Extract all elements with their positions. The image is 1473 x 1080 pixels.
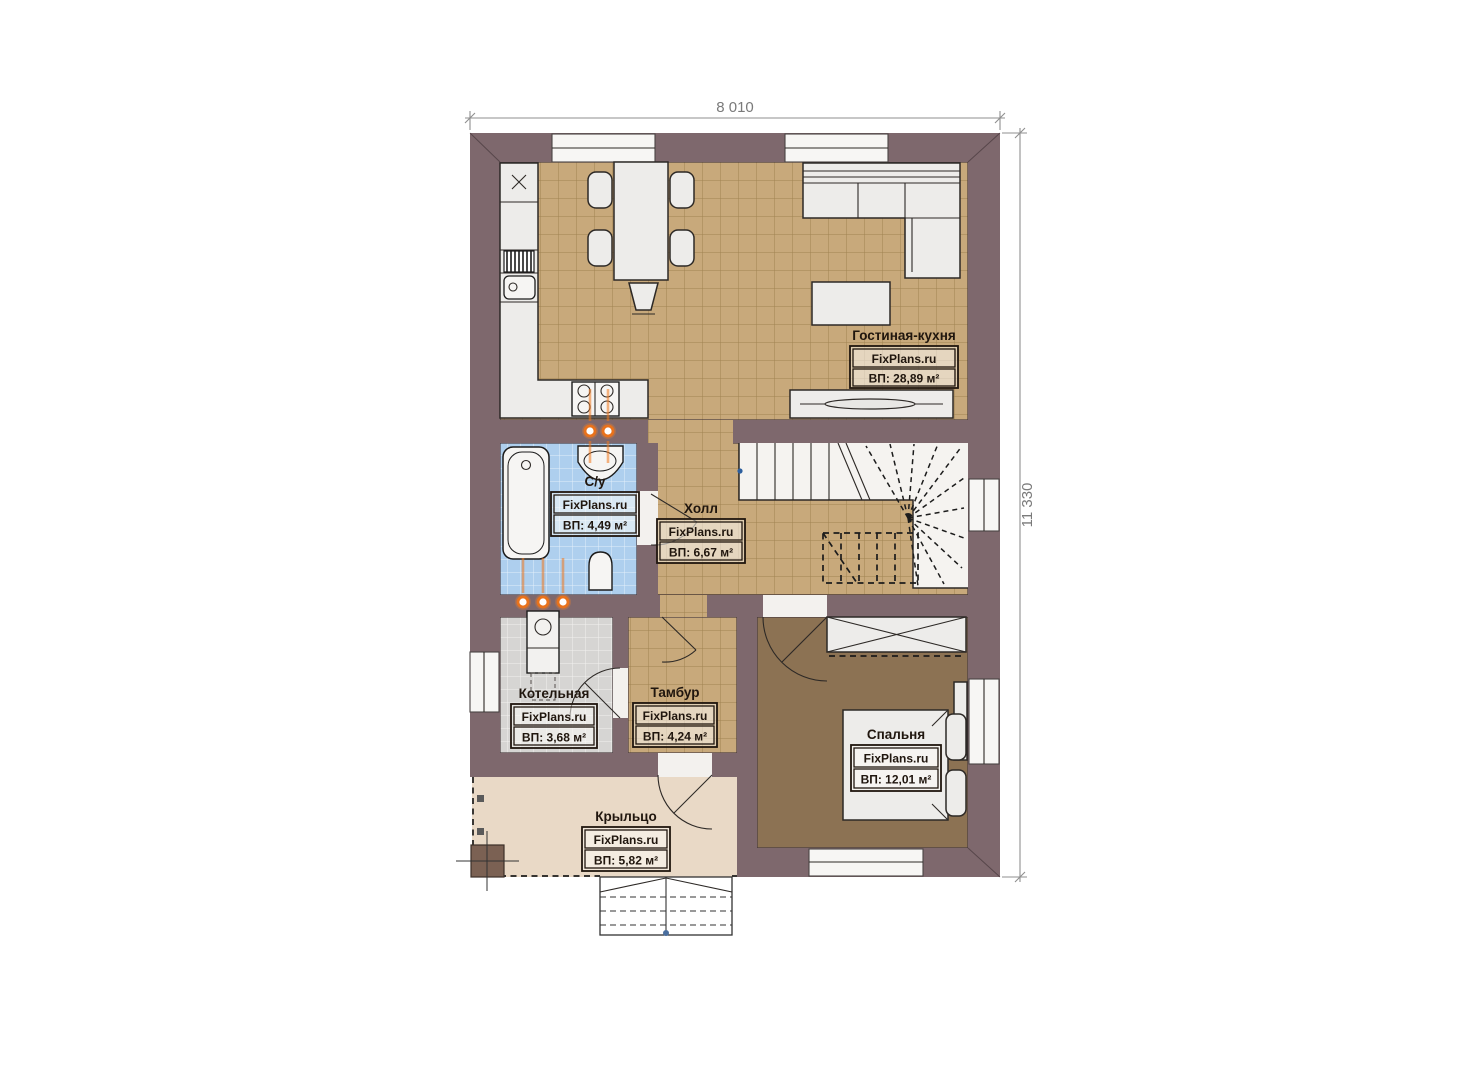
brand-watermark: FixPlans.ru <box>594 833 659 847</box>
dimension-height-label: 11 330 <box>1019 483 1036 528</box>
coffee-table <box>812 282 890 325</box>
chair <box>670 172 694 208</box>
opening-entrance-door <box>658 753 712 777</box>
opening-hall-vestibule <box>660 595 707 617</box>
tv-stand <box>790 390 953 418</box>
opening-kitchen-hall <box>648 420 733 443</box>
dimension-width-label: 8 010 <box>716 99 754 116</box>
kitchen-sink <box>504 276 535 299</box>
brand-watermark: FixPlans.ru <box>864 752 929 766</box>
stairs-upper-flight <box>739 443 913 500</box>
window-stairs-right <box>969 479 999 531</box>
window-bedroom-bottom <box>809 849 923 876</box>
room-area: ВП: 6,67 м² <box>669 546 733 560</box>
room-name: Котельная <box>519 686 590 701</box>
pillow <box>946 770 966 816</box>
room-area: ВП: 3,68 м² <box>522 731 586 745</box>
floor-plan-page: 8 010 11 330 Гостиная-кухня FixPlans.ru … <box>0 0 1473 1080</box>
room-name: С/у <box>584 474 606 489</box>
brand-watermark: FixPlans.ru <box>522 710 587 724</box>
opening-boiler-door <box>613 668 628 718</box>
toilet <box>589 552 612 590</box>
room-area: ВП: 4,24 м² <box>643 730 707 744</box>
room-name: Гостиная-кухня <box>852 328 955 343</box>
dimension-top: 8 010 <box>465 99 1005 130</box>
wall-top <box>470 133 1000 162</box>
room-area: ВП: 28,89 м² <box>869 372 940 386</box>
tv-icon <box>825 399 915 409</box>
room-name: Тамбур <box>651 685 700 700</box>
brand-watermark: FixPlans.ru <box>563 498 628 512</box>
porch-marker <box>477 828 484 835</box>
pillow <box>946 714 966 760</box>
floor-plan: 8 010 11 330 Гостиная-кухня FixPlans.ru … <box>0 0 1473 1080</box>
window-boiler-left <box>470 652 499 712</box>
brand-watermark: FixPlans.ru <box>643 709 708 723</box>
room-area: ВП: 12,01 м² <box>861 773 932 787</box>
brand-watermark: FixPlans.ru <box>872 352 937 366</box>
wall-living-stairs <box>733 420 1000 443</box>
bathtub <box>503 447 549 559</box>
gas-flame-icon <box>535 594 551 610</box>
steps-marker-dot <box>663 930 669 936</box>
brand-watermark: FixPlans.ru <box>669 525 734 539</box>
room-area: ВП: 5,82 м² <box>594 854 658 868</box>
chair <box>588 230 612 266</box>
window-bedroom-right <box>969 679 999 764</box>
gas-flame-icon <box>600 423 616 439</box>
dining-table <box>614 162 668 280</box>
gas-flame-icon <box>515 594 531 610</box>
stove <box>572 382 619 416</box>
room-label-living-kitchen: Гостиная-кухня FixPlans.ru ВП: 28,89 м² <box>850 328 958 388</box>
wardrobe <box>827 617 966 656</box>
window-kitchen-top <box>552 134 655 162</box>
stair-marker-dot <box>737 468 742 473</box>
gas-flame-icon <box>555 594 571 610</box>
wall-kitchen-bathroom <box>500 420 648 443</box>
fridge <box>504 251 534 272</box>
gas-flame-icon <box>582 423 598 439</box>
wall-vestibule-bedroom <box>737 595 757 877</box>
chair <box>588 172 612 208</box>
porch-steps <box>600 877 732 936</box>
room-name: Спальня <box>867 727 925 742</box>
chair <box>670 230 694 266</box>
room-name: Крыльцо <box>595 809 656 824</box>
opening-bathroom-door <box>637 491 658 545</box>
porch-marker <box>477 795 484 802</box>
opening-hall-bedroom <box>763 595 827 617</box>
window-living-top <box>785 134 888 162</box>
dimension-right: 11 330 <box>1002 128 1036 882</box>
room-name: Холл <box>684 501 718 516</box>
room-label-boiler: Котельная FixPlans.ru ВП: 3,68 м² <box>511 686 597 748</box>
room-area: ВП: 4,49 м² <box>563 519 627 533</box>
